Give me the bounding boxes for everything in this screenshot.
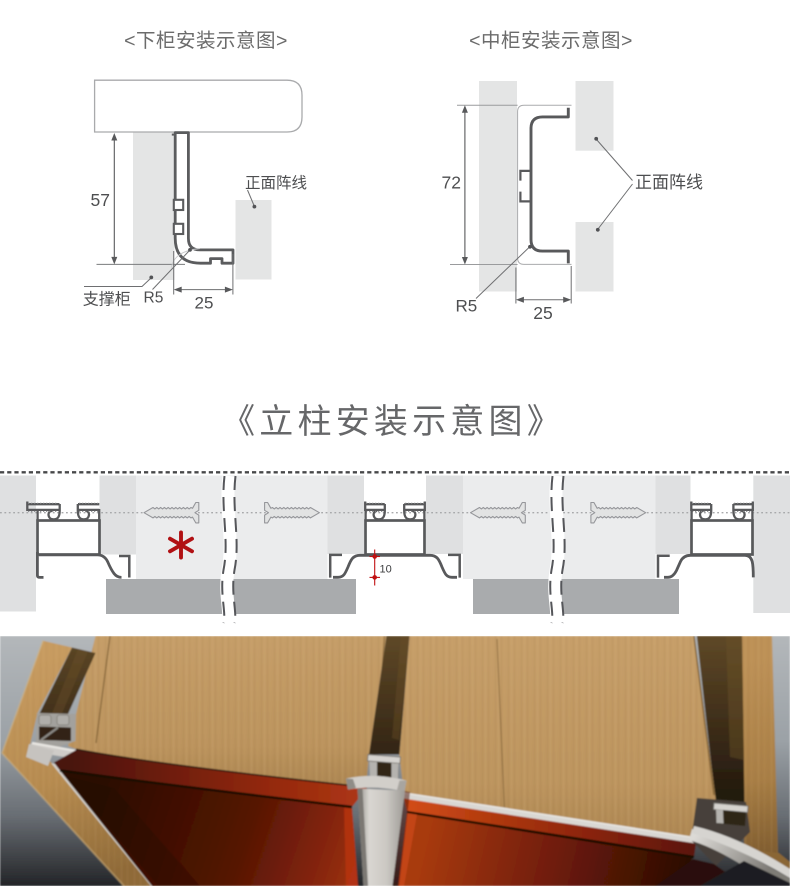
svg-text:《立柱安装示意图》: 《立柱安装示意图》 — [221, 403, 565, 441]
svg-text:正面阵线: 正面阵线 — [635, 173, 703, 192]
svg-text:R5: R5 — [144, 290, 164, 307]
svg-text:57: 57 — [91, 190, 110, 210]
svg-text:10: 10 — [380, 564, 392, 576]
svg-text:正面阵线: 正面阵线 — [245, 174, 307, 192]
svg-text:<中柜安装示意图>: <中柜安装示意图> — [469, 30, 633, 52]
svg-text:25: 25 — [533, 303, 552, 323]
svg-text:<下柜安装示意图>: <下柜安装示意图> — [124, 30, 288, 52]
svg-text:支撑柜: 支撑柜 — [83, 291, 131, 309]
svg-text:R5: R5 — [456, 297, 478, 316]
svg-text:25: 25 — [195, 294, 214, 313]
svg-text:72: 72 — [442, 173, 461, 193]
